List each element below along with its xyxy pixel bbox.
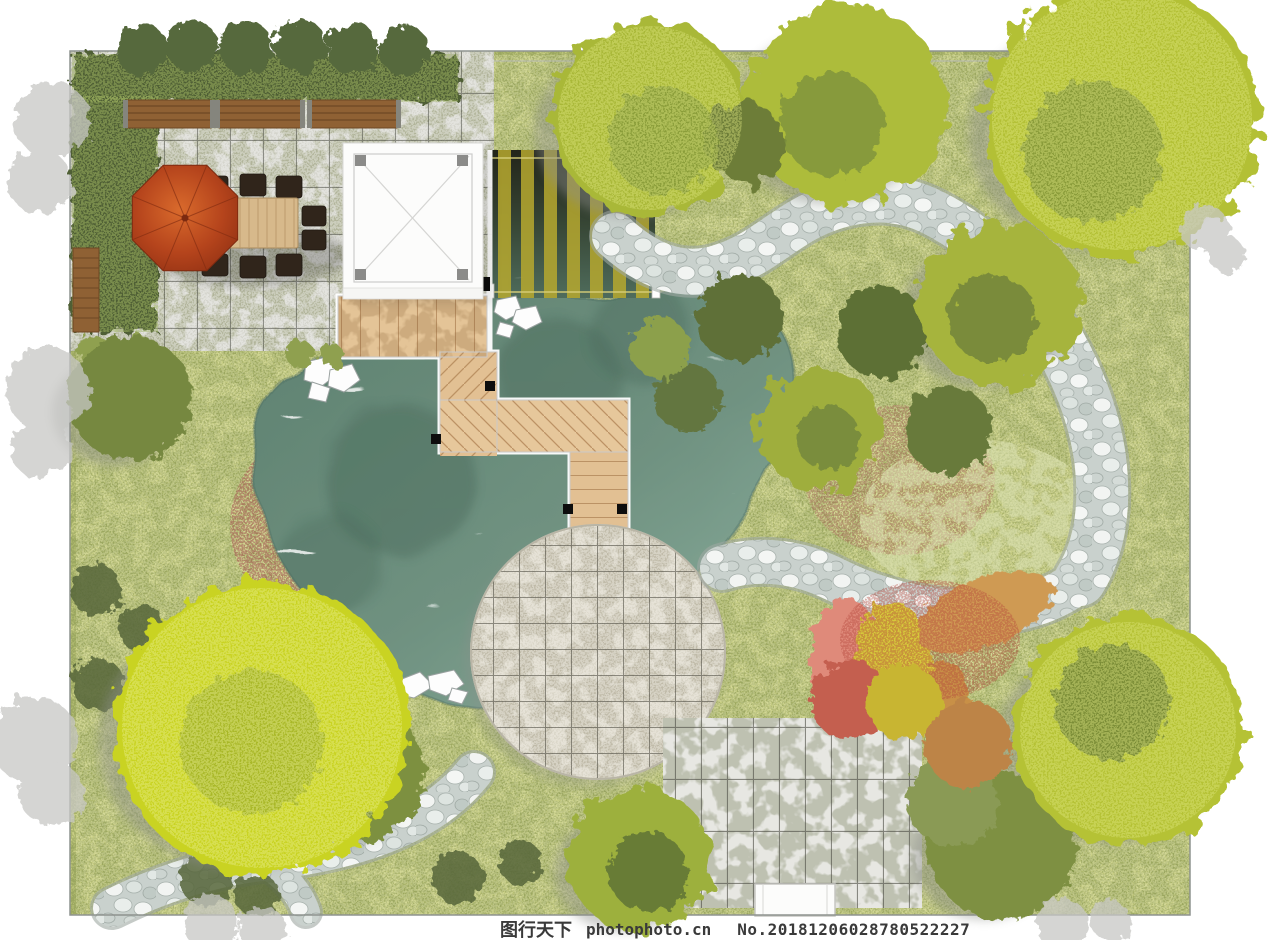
bench: [307, 100, 401, 128]
bench: [215, 100, 305, 128]
side-planter-bench: [73, 248, 99, 332]
white-pavilion: [343, 143, 493, 303]
watermark: 图行天下 photophoto.cn No.201812060287805222…: [500, 916, 970, 940]
bench: [123, 100, 215, 128]
watermark-site: photophoto.cn: [586, 920, 711, 939]
garden-plan-drawing: [0, 0, 1280, 940]
watermark-serial: No.20181206028780522227: [737, 920, 970, 939]
watermark-brand: 图行天下: [500, 916, 572, 940]
parasol: [132, 165, 237, 270]
terrace-bench: [755, 884, 835, 916]
garden-plan-canvas: 图行天下 photophoto.cn No.201812060287805222…: [0, 0, 1280, 940]
